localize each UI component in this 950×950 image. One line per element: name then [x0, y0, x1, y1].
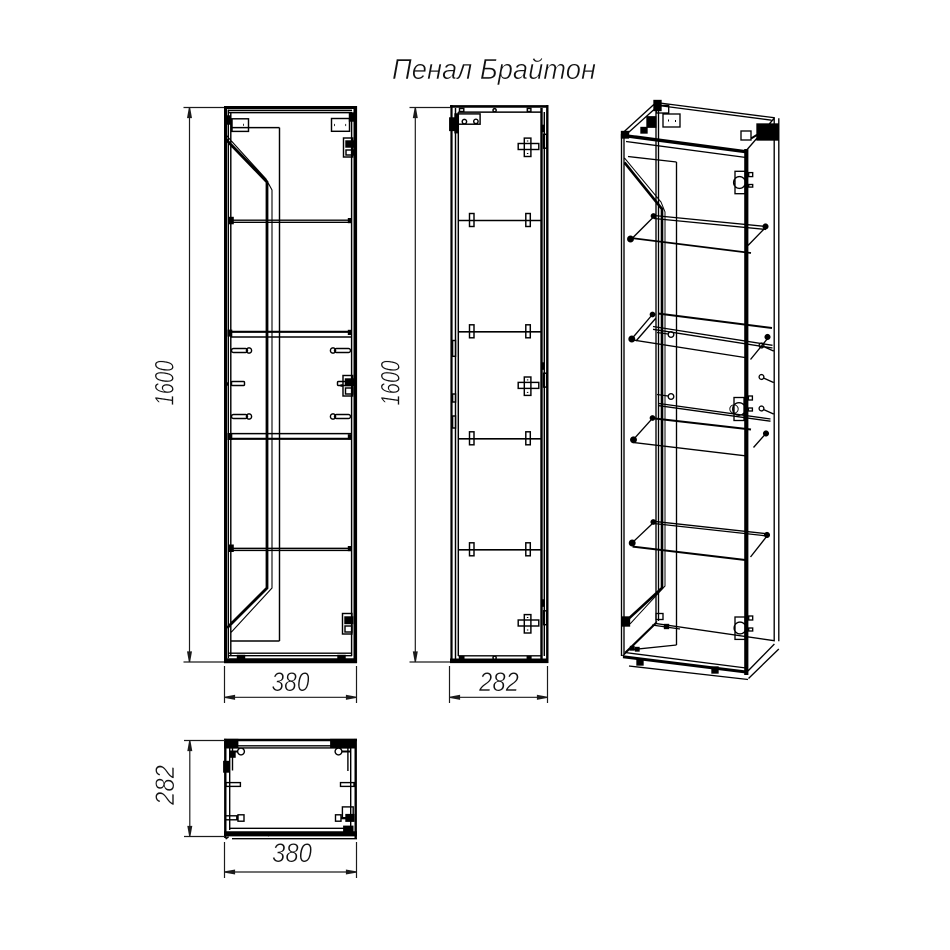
svg-text:1600: 1600 — [150, 361, 180, 406]
svg-text:Пенал Брайтон: Пенал Брайтон — [392, 54, 596, 86]
svg-text:282: 282 — [150, 765, 180, 806]
svg-text:1600: 1600 — [376, 361, 406, 406]
svg-text:380: 380 — [272, 838, 312, 868]
svg-text:282: 282 — [478, 667, 519, 697]
svg-text:380: 380 — [272, 667, 310, 697]
